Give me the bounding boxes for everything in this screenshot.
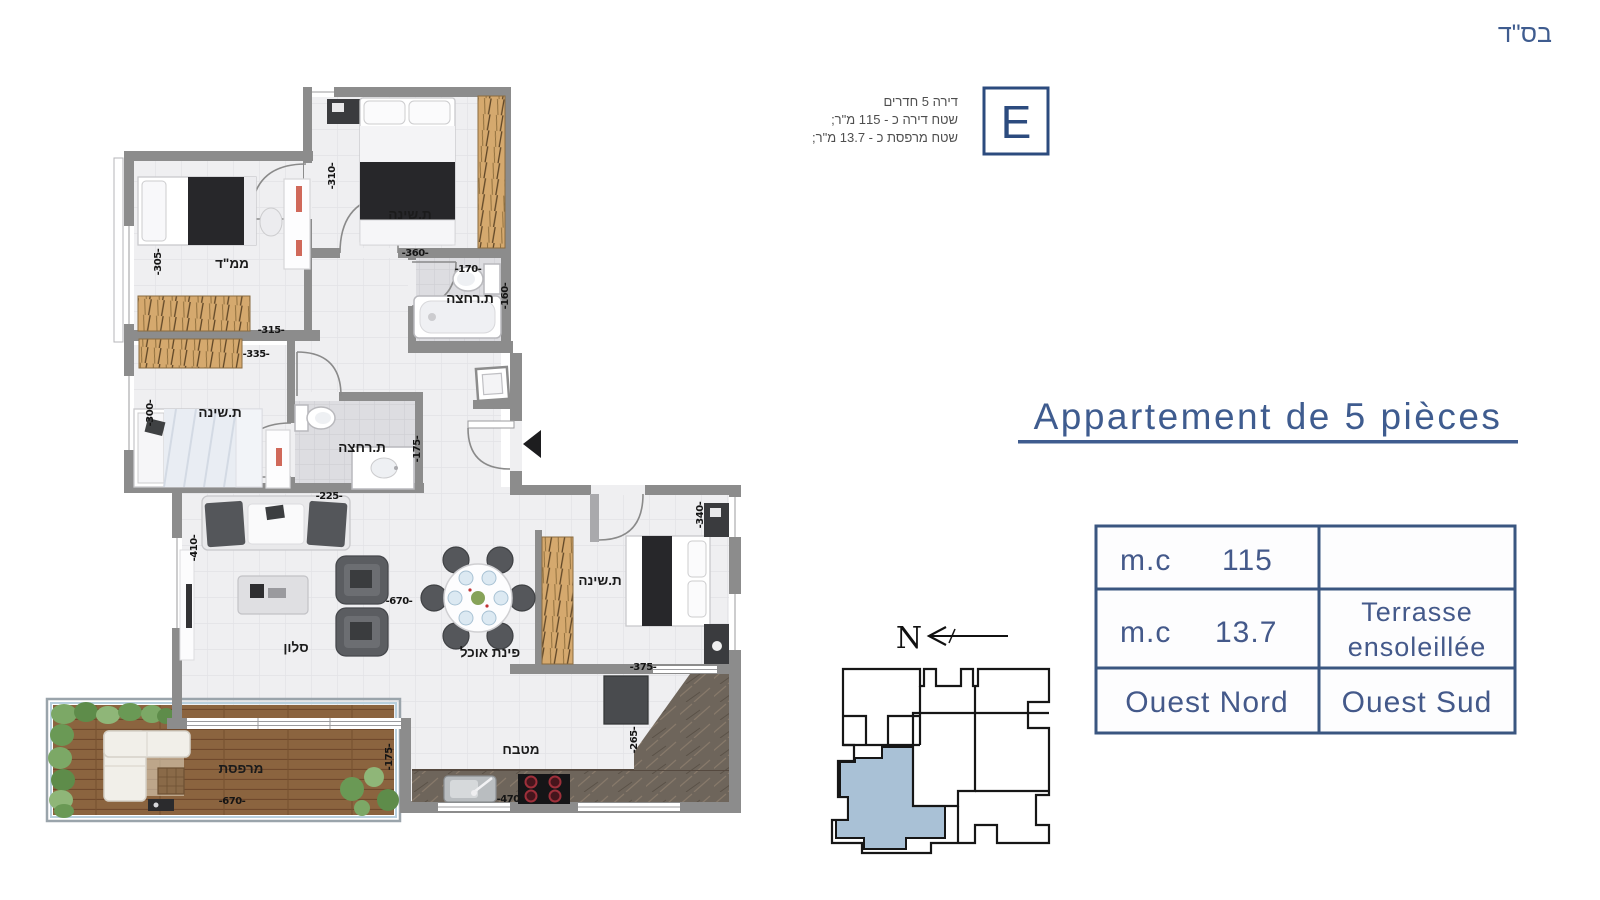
sofa bbox=[202, 496, 350, 550]
closet-right bbox=[542, 537, 573, 664]
dimension-label: -470- bbox=[497, 794, 524, 805]
room-label: ת.רחצה bbox=[338, 440, 386, 455]
dimension-label: -670- bbox=[219, 796, 246, 807]
keyplan-center-unit bbox=[913, 713, 975, 806]
page-title: Appartement de 5 pièces bbox=[1018, 396, 1518, 444]
room-label: ת.שינה bbox=[388, 207, 431, 222]
fridge bbox=[604, 676, 648, 724]
desk-left bbox=[266, 430, 290, 488]
closet-mamad bbox=[138, 296, 250, 331]
dimension-label: -170- bbox=[455, 264, 482, 275]
dimension-label: -335- bbox=[243, 349, 270, 360]
dimension-label: -175- bbox=[384, 743, 395, 770]
plan-sheet: ת.שינה ממ"ד ת.רחצה ת.שינה ת.רחצה סלון פי… bbox=[0, 0, 1600, 900]
dimension-label: -360- bbox=[402, 248, 429, 259]
north-label: N bbox=[896, 621, 922, 656]
table-cell: m.c bbox=[1120, 544, 1171, 577]
unit-info-line: שטח דירה כ - 115 מ"ר; bbox=[831, 112, 958, 127]
title-underline bbox=[1018, 440, 1518, 444]
table-cell: Ouest Sud bbox=[1342, 686, 1493, 719]
coffee-table bbox=[238, 576, 308, 614]
room-label: מטבח bbox=[502, 742, 539, 757]
room-label: פינת אוכל bbox=[460, 645, 521, 660]
bsd-text: בס"ד bbox=[1498, 20, 1552, 48]
dimension-label: -175- bbox=[412, 435, 423, 462]
dimension-label: -670- bbox=[386, 596, 413, 607]
unit-info-line: שטח מרפסת כ - 13.7 מ"ר; bbox=[812, 130, 958, 145]
floor-corridor bbox=[312, 258, 408, 345]
table-cell: 115 bbox=[1222, 544, 1273, 577]
unit-info-line: דירה 5 חדרים bbox=[884, 94, 959, 109]
stove bbox=[518, 774, 570, 804]
dimension-label: -265- bbox=[629, 726, 640, 753]
tray bbox=[148, 799, 174, 811]
table-cell: m.c bbox=[1120, 616, 1171, 649]
table-cell: Ouest Nord bbox=[1125, 686, 1288, 719]
closet-top bbox=[478, 96, 505, 248]
room-label: ת.שינה bbox=[578, 573, 621, 588]
door-leaf bbox=[590, 494, 599, 542]
spec-table: m.c 115 m.c 13.7 Terrasse ensoleillée Ou… bbox=[1096, 526, 1515, 733]
dimension-label: -375- bbox=[630, 662, 657, 673]
room-label: ת.רחצה bbox=[446, 291, 494, 306]
dimension-label: -300- bbox=[145, 399, 156, 426]
window-ledge bbox=[114, 158, 123, 342]
table-cell: ensoleillée bbox=[1348, 632, 1487, 662]
dimension-label: -305- bbox=[153, 248, 164, 275]
unit-badge-letter: E bbox=[1001, 96, 1032, 148]
entry-door-leaf bbox=[468, 421, 514, 428]
compass: N bbox=[896, 621, 1008, 656]
floor-plan: ת.שינה ממ"ד ת.רחצה ת.שינה ת.רחצה סלון פי… bbox=[47, 87, 741, 821]
table-cell: 13.7 bbox=[1215, 616, 1277, 649]
dimension-label: -410- bbox=[189, 534, 200, 561]
dimension-label: -340- bbox=[695, 501, 706, 528]
unit-info: דירה 5 חדרים שטח דירה כ - 115 מ"ר; שטח מ… bbox=[812, 88, 1048, 154]
keyplan-highlighted-unit bbox=[836, 747, 945, 849]
closet-left bbox=[139, 339, 242, 368]
dimension-label: -310- bbox=[327, 162, 338, 189]
room-label: מרפסת bbox=[219, 761, 264, 776]
key-plan bbox=[832, 669, 1049, 853]
room-label: ממ"ד bbox=[215, 256, 249, 271]
dimension-label: -315- bbox=[258, 325, 285, 336]
toilet-mid bbox=[295, 405, 335, 431]
room-label: סלון bbox=[283, 640, 308, 655]
right-panel: בס"ד דירה 5 חדרים שטח דירה כ - 115 מ"ר; … bbox=[812, 20, 1552, 853]
bed-mamad bbox=[138, 177, 256, 245]
room-label: ת.שינה bbox=[198, 405, 241, 420]
dimension-label: -225- bbox=[316, 491, 343, 502]
entrance-arrow-icon bbox=[523, 430, 541, 458]
shaft bbox=[476, 367, 509, 401]
table-cell: Terrasse bbox=[1361, 597, 1473, 627]
rattan-table bbox=[158, 768, 184, 794]
tv-console bbox=[180, 550, 194, 660]
title-text: Appartement de 5 pièces bbox=[1034, 396, 1503, 437]
dimension-label: -160- bbox=[500, 282, 511, 309]
